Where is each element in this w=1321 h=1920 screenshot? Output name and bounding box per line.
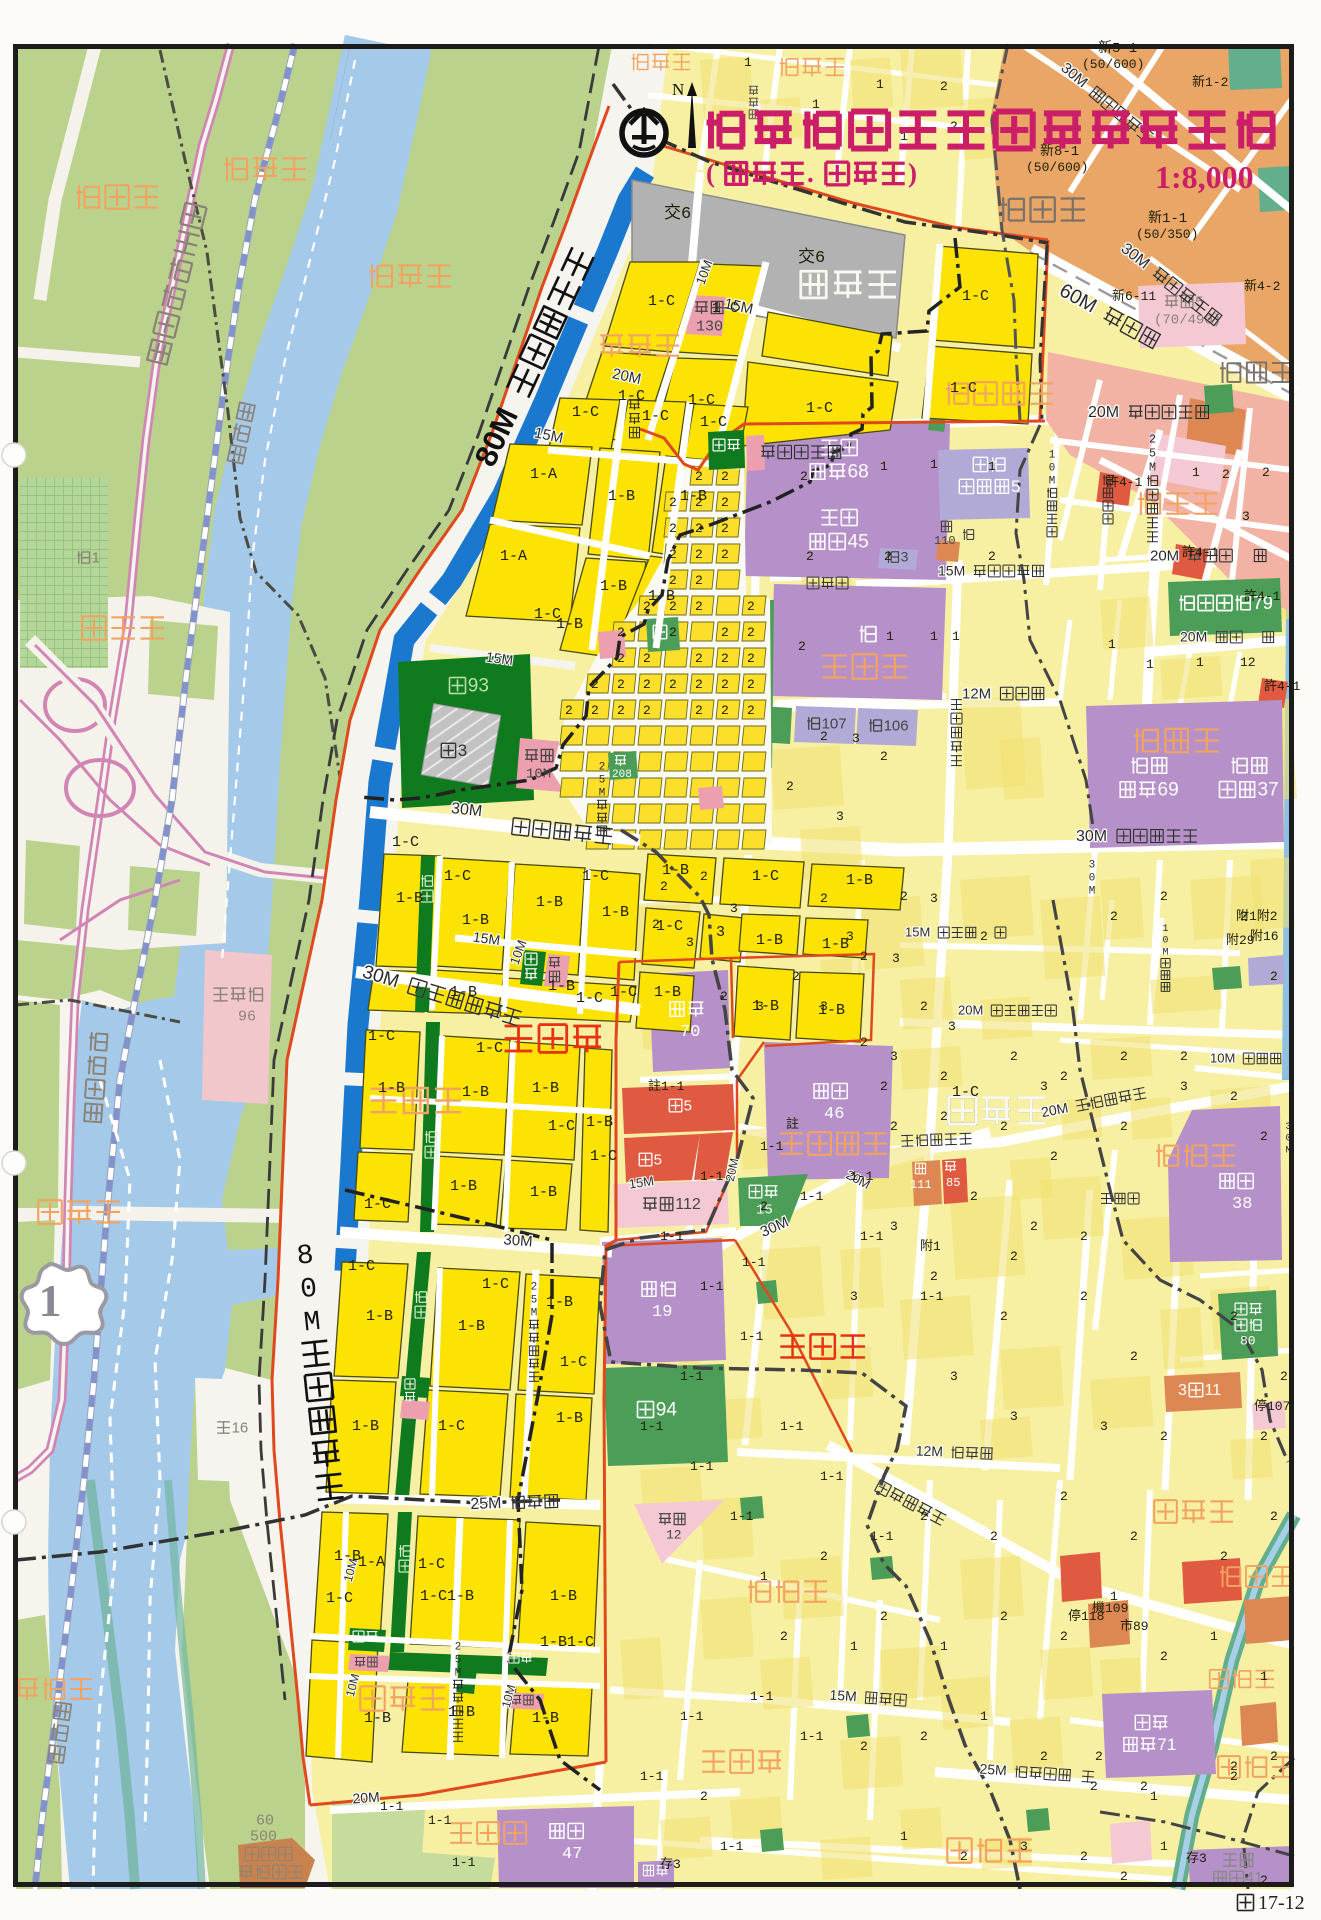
svg-text:2: 2 xyxy=(695,573,703,588)
svg-text:註: 註 xyxy=(786,1117,799,1132)
svg-text:1: 1 xyxy=(930,457,938,472)
svg-text:71: 71 xyxy=(1157,1735,1176,1754)
svg-text:2: 2 xyxy=(531,1282,537,1294)
svg-text:15M: 15M xyxy=(905,925,930,940)
svg-text:3: 3 xyxy=(756,999,764,1014)
svg-text:3: 3 xyxy=(1089,860,1095,872)
svg-text:2: 2 xyxy=(880,749,888,764)
svg-text:1-B: 1-B xyxy=(366,1308,393,1325)
svg-text:許4-1: 許4-1 xyxy=(1244,589,1281,604)
svg-text:12M: 12M xyxy=(962,685,991,702)
svg-text:130: 130 xyxy=(696,318,723,335)
svg-text:1:8,000: 1:8,000 xyxy=(1155,159,1254,195)
svg-text:1: 1 xyxy=(1108,637,1116,652)
svg-text:2: 2 xyxy=(591,703,599,718)
svg-text:1-B: 1-B xyxy=(532,1080,559,1097)
svg-text:2: 2 xyxy=(1090,1779,1098,1794)
svg-text:2: 2 xyxy=(747,677,755,692)
svg-text:1-1: 1-1 xyxy=(860,1229,884,1244)
svg-text:2: 2 xyxy=(1280,1369,1288,1384)
svg-text:3: 3 xyxy=(850,1289,858,1304)
svg-text:2: 2 xyxy=(1030,1219,1038,1234)
svg-text:1-B: 1-B xyxy=(550,1588,577,1605)
svg-text:2: 2 xyxy=(1110,909,1118,924)
svg-text:3: 3 xyxy=(820,999,828,1014)
svg-text:2: 2 xyxy=(669,625,677,640)
svg-text:2: 2 xyxy=(721,625,729,640)
svg-text:3: 3 xyxy=(901,549,909,565)
svg-text:3: 3 xyxy=(686,935,694,950)
svg-text:12: 12 xyxy=(1240,655,1256,670)
svg-text:68: 68 xyxy=(848,462,869,483)
svg-text:2: 2 xyxy=(1095,1749,1103,1764)
svg-text:(50/600): (50/600) xyxy=(1082,57,1144,72)
svg-text:1-C: 1-C xyxy=(326,1590,353,1607)
svg-text:2: 2 xyxy=(565,703,573,718)
svg-text:3: 3 xyxy=(1010,1409,1018,1424)
svg-text:2: 2 xyxy=(617,651,625,666)
svg-text:2: 2 xyxy=(930,1269,938,1284)
svg-text:新6-11: 新6-11 xyxy=(1112,288,1156,304)
svg-text:1: 1 xyxy=(1192,465,1200,480)
svg-text:新4-2: 新4-2 xyxy=(1244,278,1280,294)
svg-text:2: 2 xyxy=(860,1035,868,1050)
svg-text:1-1: 1-1 xyxy=(640,1419,664,1434)
svg-text:1: 1 xyxy=(988,459,996,474)
svg-text:1-C: 1-C xyxy=(590,1148,617,1165)
svg-text:60: 60 xyxy=(256,1812,274,1829)
svg-text:17-12: 17-12 xyxy=(1258,1892,1305,1914)
svg-text:30M: 30M xyxy=(503,1231,533,1250)
svg-text:1-C: 1-C xyxy=(642,408,669,425)
svg-text:3: 3 xyxy=(950,1369,958,1384)
svg-text:5: 5 xyxy=(1011,477,1020,496)
svg-text:25M: 25M xyxy=(979,1761,1007,1779)
svg-text:2: 2 xyxy=(792,969,800,984)
svg-text:1-B1-C: 1-B1-C xyxy=(540,1634,594,1651)
svg-text:2: 2 xyxy=(884,549,892,564)
svg-text:1-1: 1-1 xyxy=(800,1189,824,1204)
svg-text:46: 46 xyxy=(824,1105,844,1124)
svg-text:2: 2 xyxy=(695,703,703,718)
svg-text:2: 2 xyxy=(721,651,729,666)
svg-text:交6: 交6 xyxy=(798,247,825,268)
svg-text:1: 1 xyxy=(850,1639,858,1654)
svg-text:2: 2 xyxy=(940,79,948,94)
svg-text:1-C: 1-C xyxy=(476,1040,503,1057)
svg-text:2: 2 xyxy=(747,625,755,640)
svg-text:1-B: 1-B xyxy=(450,984,477,1001)
svg-text:1-1: 1-1 xyxy=(870,1529,894,1544)
svg-text:(: ( xyxy=(706,158,715,188)
svg-text:1-C: 1-C xyxy=(548,1118,575,1135)
svg-text:96: 96 xyxy=(238,1008,256,1025)
svg-text:2: 2 xyxy=(747,703,755,718)
svg-text:1-1: 1-1 xyxy=(740,1329,764,1344)
svg-text:M: M xyxy=(1049,476,1055,488)
svg-text:2: 2 xyxy=(960,1849,968,1864)
svg-text:2: 2 xyxy=(970,1189,978,1204)
svg-text:1-1: 1-1 xyxy=(680,1709,704,1724)
svg-text:1-C: 1-C xyxy=(560,1354,587,1371)
svg-text:1-1: 1-1 xyxy=(700,1279,724,1294)
svg-text:1-1: 1-1 xyxy=(690,1459,714,1474)
svg-text:1-C: 1-C xyxy=(444,868,471,885)
svg-text:2: 2 xyxy=(721,677,729,692)
svg-text:1-B: 1-B xyxy=(448,1704,475,1721)
svg-text:1-C: 1-C xyxy=(572,404,599,421)
svg-text:2: 2 xyxy=(780,1629,788,1644)
svg-text:2: 2 xyxy=(599,762,605,774)
svg-text:47: 47 xyxy=(562,1845,582,1864)
svg-text:1-B: 1-B xyxy=(756,932,783,949)
svg-text:3: 3 xyxy=(890,1219,898,1234)
svg-text:2: 2 xyxy=(786,779,794,794)
svg-text:1: 1 xyxy=(886,629,894,644)
svg-text:1: 1 xyxy=(1196,655,1204,670)
svg-text:1-B: 1-B xyxy=(536,894,563,911)
svg-text:2: 2 xyxy=(643,703,651,718)
svg-text:1-C: 1-C xyxy=(438,1418,465,1435)
svg-text:1-C: 1-C xyxy=(576,990,603,1007)
svg-text:2: 2 xyxy=(1220,1549,1228,1564)
svg-text:2: 2 xyxy=(860,949,868,964)
svg-text:2: 2 xyxy=(660,879,668,894)
svg-text:1: 1 xyxy=(760,1569,768,1584)
svg-text:M: M xyxy=(455,1668,461,1680)
svg-text:M: M xyxy=(1163,947,1169,958)
svg-text:1-B: 1-B xyxy=(556,616,583,633)
svg-text:附1附2: 附1附2 xyxy=(1236,909,1278,924)
svg-text:1-C: 1-C xyxy=(368,1028,395,1045)
svg-text:1-1: 1-1 xyxy=(640,1769,664,1784)
svg-text:1: 1 xyxy=(952,629,960,644)
svg-text:1: 1 xyxy=(1150,1789,1158,1804)
svg-text:2: 2 xyxy=(890,1119,898,1134)
svg-text:2: 2 xyxy=(747,651,755,666)
svg-text:12: 12 xyxy=(666,1528,682,1543)
svg-text:5: 5 xyxy=(455,1655,461,1667)
svg-text:0: 0 xyxy=(1163,935,1169,946)
svg-text:3: 3 xyxy=(1180,1079,1188,1094)
svg-text:5: 5 xyxy=(1149,446,1156,460)
svg-text:2: 2 xyxy=(700,869,708,884)
svg-text:M: M xyxy=(531,1308,537,1320)
svg-text:2: 2 xyxy=(1060,1489,1068,1504)
svg-text:2: 2 xyxy=(820,1549,828,1564)
svg-text:1-B: 1-B xyxy=(532,1710,559,1727)
svg-text:2: 2 xyxy=(806,549,814,564)
svg-text:1: 1 xyxy=(1146,657,1154,672)
svg-text:1-B: 1-B xyxy=(364,1710,391,1727)
svg-text:2: 2 xyxy=(1230,1309,1238,1324)
svg-text:許4-1: 許4-1 xyxy=(1106,475,1143,490)
svg-text:1-A: 1-A xyxy=(358,1554,385,1571)
svg-text:2: 2 xyxy=(1010,1249,1018,1264)
svg-text:2: 2 xyxy=(1160,889,1168,904)
svg-text:3: 3 xyxy=(1040,1079,1048,1094)
svg-text:1-B: 1-B xyxy=(602,904,629,921)
svg-text:2: 2 xyxy=(669,573,677,588)
svg-text:2: 2 xyxy=(652,917,660,932)
svg-text:3: 3 xyxy=(930,891,938,906)
svg-text:2: 2 xyxy=(920,1509,928,1524)
svg-text:1-B: 1-B xyxy=(462,912,489,929)
svg-text:2: 2 xyxy=(900,889,908,904)
svg-text:93: 93 xyxy=(468,676,489,697)
svg-text:2: 2 xyxy=(643,651,651,666)
svg-text:1-B: 1-B xyxy=(654,984,681,1001)
svg-text:5: 5 xyxy=(531,1295,537,1307)
svg-text:10M: 10M xyxy=(1210,1051,1235,1066)
svg-text:1-1: 1-1 xyxy=(428,1813,452,1828)
svg-text:2: 2 xyxy=(1270,1749,1278,1764)
svg-text:45: 45 xyxy=(848,532,869,553)
svg-text:): ) xyxy=(908,158,917,188)
svg-text:2: 2 xyxy=(721,547,729,562)
svg-text:1-B: 1-B xyxy=(662,862,689,879)
svg-text:1-C: 1-C xyxy=(950,380,977,397)
svg-text:1-C: 1-C xyxy=(364,1196,391,1213)
svg-text:1-1: 1-1 xyxy=(380,1799,404,1814)
svg-text:M: M xyxy=(1149,461,1156,475)
svg-text:11: 11 xyxy=(1205,1382,1222,1399)
svg-text:2: 2 xyxy=(695,469,703,484)
svg-text:1-1: 1-1 xyxy=(820,1469,844,1484)
svg-text:1-C: 1-C xyxy=(648,293,675,310)
svg-text:2: 2 xyxy=(880,1609,888,1624)
svg-text:1-1: 1-1 xyxy=(730,1509,754,1524)
svg-text:2: 2 xyxy=(1180,1049,1188,1064)
svg-text:1-B: 1-B xyxy=(378,1080,405,1097)
svg-text:1-C: 1-C xyxy=(962,288,989,305)
svg-text:1-1: 1-1 xyxy=(850,1169,874,1184)
svg-text:2: 2 xyxy=(669,547,677,562)
svg-text:2: 2 xyxy=(990,1529,998,1544)
svg-text:1: 1 xyxy=(39,1275,62,1326)
svg-text:3: 3 xyxy=(836,809,844,824)
svg-text:2: 2 xyxy=(1060,1629,1068,1644)
svg-text:1: 1 xyxy=(1163,923,1169,934)
svg-text:1-C: 1-C xyxy=(392,834,419,851)
svg-text:20M: 20M xyxy=(1180,629,1207,645)
svg-text:2: 2 xyxy=(920,999,928,1014)
svg-text:25M: 25M xyxy=(470,1495,502,1513)
svg-text:2: 2 xyxy=(1140,1779,1148,1794)
svg-text:1-1: 1-1 xyxy=(800,1729,824,1744)
svg-text:2: 2 xyxy=(747,599,755,614)
svg-text:2: 2 xyxy=(721,703,729,718)
svg-text:附29: 附29 xyxy=(1226,933,1255,948)
svg-text:2: 2 xyxy=(455,1642,461,1654)
svg-text:1-C: 1-C xyxy=(348,1258,375,1275)
svg-text:80: 80 xyxy=(1240,1334,1256,1349)
svg-text:1-B: 1-B xyxy=(608,488,635,505)
svg-text:2: 2 xyxy=(695,677,703,692)
svg-text:1: 1 xyxy=(930,629,938,644)
svg-text:1: 1 xyxy=(1049,450,1055,462)
svg-text:2: 2 xyxy=(643,677,651,692)
svg-text:69: 69 xyxy=(1158,780,1179,801)
svg-text:2: 2 xyxy=(1130,1349,1138,1364)
svg-text:許4-1: 許4-1 xyxy=(1182,545,1219,560)
svg-text:2: 2 xyxy=(1270,1509,1278,1524)
svg-text:38: 38 xyxy=(1232,1195,1252,1214)
svg-text:2: 2 xyxy=(1080,1229,1088,1244)
svg-text:85: 85 xyxy=(946,1176,960,1190)
svg-text:1-B: 1-B xyxy=(530,1184,557,1201)
svg-text:3: 3 xyxy=(852,731,860,746)
svg-text:2: 2 xyxy=(695,651,703,666)
svg-text:15M: 15M xyxy=(829,1687,857,1705)
svg-text:3: 3 xyxy=(1100,1419,1108,1434)
svg-text:1-B: 1-B xyxy=(546,1294,573,1311)
svg-text:市89: 市89 xyxy=(1120,1618,1149,1634)
svg-text:30M: 30M xyxy=(450,800,483,820)
svg-text:M: M xyxy=(302,1307,322,1340)
svg-text:3: 3 xyxy=(716,924,725,941)
svg-text:2: 2 xyxy=(1080,1849,1088,1864)
svg-text:3: 3 xyxy=(846,929,854,944)
svg-text:1-B: 1-B xyxy=(352,1418,379,1435)
svg-text:1: 1 xyxy=(940,1639,948,1654)
svg-text:交6: 交6 xyxy=(664,203,691,224)
svg-text:1-C: 1-C xyxy=(688,392,715,409)
svg-text:1-C: 1-C xyxy=(610,984,637,1001)
svg-text:1: 1 xyxy=(744,55,752,70)
svg-text:2: 2 xyxy=(980,929,988,944)
svg-text:1-C: 1-C xyxy=(806,400,833,417)
svg-text:2: 2 xyxy=(1010,1049,1018,1064)
svg-text:2: 2 xyxy=(669,599,677,614)
svg-text:1-C: 1-C xyxy=(712,300,739,317)
svg-text:2: 2 xyxy=(695,521,703,536)
svg-text:111: 111 xyxy=(910,1178,932,1192)
svg-text:1-B: 1-B xyxy=(680,488,707,505)
svg-text:10M: 10M xyxy=(526,767,551,783)
svg-text:2: 2 xyxy=(1120,1049,1128,1064)
svg-text:12M: 12M xyxy=(915,1443,943,1460)
svg-text:1: 1 xyxy=(1160,1839,1168,1854)
svg-text:(50/350): (50/350) xyxy=(1136,227,1198,242)
svg-text:2: 2 xyxy=(591,677,599,692)
svg-text:1-B: 1-B xyxy=(556,1410,583,1427)
svg-text:3: 3 xyxy=(458,741,467,760)
svg-text:1-B: 1-B xyxy=(822,936,849,953)
svg-text:.: . xyxy=(807,158,814,188)
svg-text:存3: 存3 xyxy=(660,1857,681,1872)
svg-text:20M: 20M xyxy=(1088,404,1119,421)
svg-text:1: 1 xyxy=(900,1829,908,1844)
svg-text:1-C: 1-C xyxy=(618,388,645,405)
svg-text:1-A: 1-A xyxy=(500,548,527,565)
svg-text:16: 16 xyxy=(232,1419,249,1436)
svg-text:1: 1 xyxy=(812,97,820,112)
svg-text:20M: 20M xyxy=(1150,547,1179,564)
svg-text:1-1: 1-1 xyxy=(742,1255,766,1270)
svg-text:2: 2 xyxy=(1160,1649,1168,1664)
svg-text:2: 2 xyxy=(1120,1869,1128,1884)
svg-text:2: 2 xyxy=(940,1069,948,1084)
svg-text:2: 2 xyxy=(617,625,625,640)
svg-text:1-B: 1-B xyxy=(586,1114,613,1131)
svg-text:1-B: 1-B xyxy=(396,890,423,907)
svg-text:1: 1 xyxy=(880,459,888,474)
svg-text:1-1: 1-1 xyxy=(780,1419,804,1434)
svg-text:2: 2 xyxy=(1050,1149,1058,1164)
svg-text:2: 2 xyxy=(1080,1289,1088,1304)
svg-text:94: 94 xyxy=(656,1400,678,1421)
svg-text:20M: 20M xyxy=(958,1003,983,1018)
svg-text:30M: 30M xyxy=(1076,828,1107,845)
svg-text:2: 2 xyxy=(669,495,677,510)
svg-text:5: 5 xyxy=(654,1151,662,1168)
svg-text:2: 2 xyxy=(617,703,625,718)
svg-text:1-C: 1-C xyxy=(482,1276,509,1293)
svg-text:1-1: 1-1 xyxy=(680,1369,704,1384)
svg-text:2: 2 xyxy=(669,521,677,536)
svg-text:106: 106 xyxy=(884,717,909,734)
svg-text:2: 2 xyxy=(760,1199,768,1214)
svg-text:2: 2 xyxy=(1222,467,1230,482)
svg-text:1-B: 1-B xyxy=(458,1318,485,1335)
svg-text:2: 2 xyxy=(800,469,808,484)
svg-text:2: 2 xyxy=(669,677,677,692)
svg-text:2: 2 xyxy=(1000,1609,1008,1624)
svg-text:208: 208 xyxy=(612,769,632,781)
svg-text:存3: 存3 xyxy=(1186,1851,1207,1866)
svg-text:2: 2 xyxy=(1000,1119,1008,1134)
svg-text:2: 2 xyxy=(820,891,828,906)
svg-text:3: 3 xyxy=(892,951,900,966)
svg-text:1: 1 xyxy=(1260,1669,1268,1684)
svg-text:2: 2 xyxy=(1230,1759,1238,1774)
svg-text:110: 110 xyxy=(934,534,956,548)
svg-text:2: 2 xyxy=(1260,1129,1268,1144)
svg-text:2: 2 xyxy=(940,1109,948,1124)
svg-text:M: M xyxy=(599,788,605,800)
svg-text:1-C: 1-C xyxy=(752,868,779,885)
svg-text:70: 70 xyxy=(680,1023,700,1042)
svg-text:2: 2 xyxy=(1260,1429,1268,1444)
svg-text:1-1: 1-1 xyxy=(760,1139,784,1154)
svg-text:新1-1: 新1-1 xyxy=(1148,210,1187,227)
svg-text:1: 1 xyxy=(1210,1629,1218,1644)
svg-text:2: 2 xyxy=(1160,1429,1168,1444)
svg-text:M: M xyxy=(1089,886,1095,898)
svg-text:3: 3 xyxy=(948,1019,956,1034)
svg-text:1-1: 1-1 xyxy=(452,1855,476,1870)
svg-text:3: 3 xyxy=(730,901,738,916)
svg-text:2: 2 xyxy=(721,521,729,536)
svg-text:15M: 15M xyxy=(938,563,965,579)
svg-text:1-B: 1-B xyxy=(548,978,575,995)
svg-text:1-C: 1-C xyxy=(656,918,683,935)
svg-text:1-A: 1-A xyxy=(530,466,557,483)
svg-text:2: 2 xyxy=(920,1729,928,1744)
svg-text:1: 1 xyxy=(876,77,884,92)
svg-text:112: 112 xyxy=(675,1196,701,1213)
svg-text:3: 3 xyxy=(890,1049,898,1064)
svg-text:3: 3 xyxy=(1020,1839,1028,1854)
svg-text:1-1: 1-1 xyxy=(660,1229,684,1244)
svg-text:0: 0 xyxy=(1049,463,1055,475)
svg-text:2: 2 xyxy=(1060,1069,1068,1084)
svg-text:註1-1: 註1-1 xyxy=(648,1079,685,1094)
svg-text:2: 2 xyxy=(700,1789,708,1804)
svg-text:5: 5 xyxy=(599,775,605,787)
svg-text:2: 2 xyxy=(1149,432,1156,446)
